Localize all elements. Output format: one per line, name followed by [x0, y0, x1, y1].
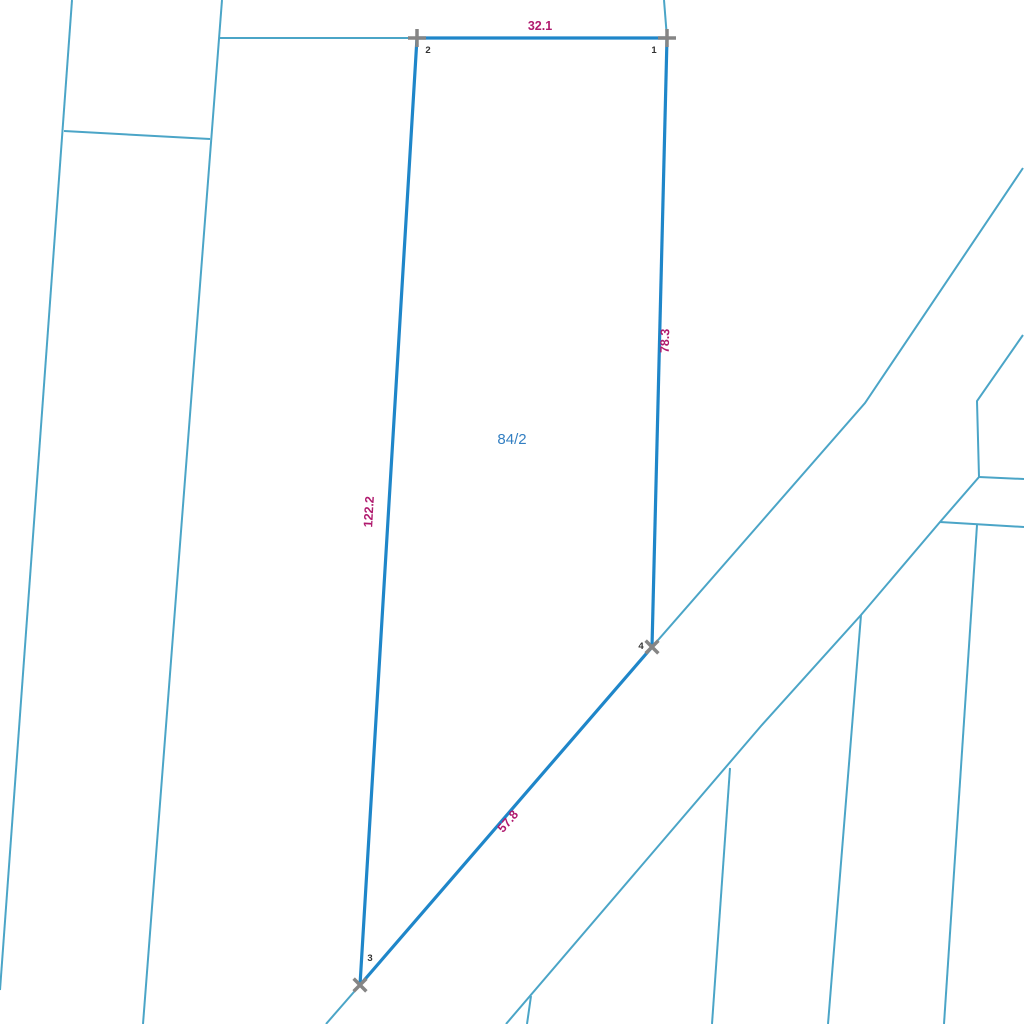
vertex-number-label-1: 1 [651, 45, 657, 56]
vertex-number-label-2: 2 [425, 45, 430, 56]
boundary-line-west-cross [64, 131, 210, 139]
map-viewport[interactable]: 32.178.3122.257.8123484/2 [0, 0, 1024, 1024]
vertex-number-label-3: 3 [367, 953, 372, 964]
vertex-marker-1-plus-icon[interactable] [658, 29, 676, 47]
vertex-marker-2-plus-icon[interactable] [408, 29, 426, 47]
map-canvas[interactable]: 32.178.3122.257.8123484/2 [0, 0, 1024, 1024]
boundary-line-west-outer [0, 0, 72, 990]
road-west-edge-north [652, 168, 1023, 647]
boundary-line-southeast-1 [712, 768, 730, 1024]
boundary-line-east-2 [940, 522, 1024, 527]
cadastral-lines-layer [0, 0, 1024, 1024]
vertex-markers-layer [347, 29, 676, 998]
road-east-edge [506, 335, 1023, 1024]
edge-length-label-2-3: 122.2 [361, 496, 377, 528]
boundary-line-west-inner [143, 0, 222, 1024]
parcel-number-label: 84/2 [497, 431, 526, 448]
boundary-line-southeast-3 [944, 525, 977, 1024]
edge-length-label-1-4: 78.3 [658, 329, 673, 354]
boundary-line-east-1 [979, 477, 1024, 479]
edge-length-label-3-4: 57.8 [495, 808, 522, 836]
parcel-edges-layer [360, 38, 667, 985]
edge-length-label-2-1: 32.1 [528, 19, 552, 33]
labels-layer: 32.178.3122.257.8123484/2 [361, 19, 672, 964]
vertex-number-label-4: 4 [638, 641, 644, 652]
boundary-line-southeast-2 [828, 615, 861, 1024]
